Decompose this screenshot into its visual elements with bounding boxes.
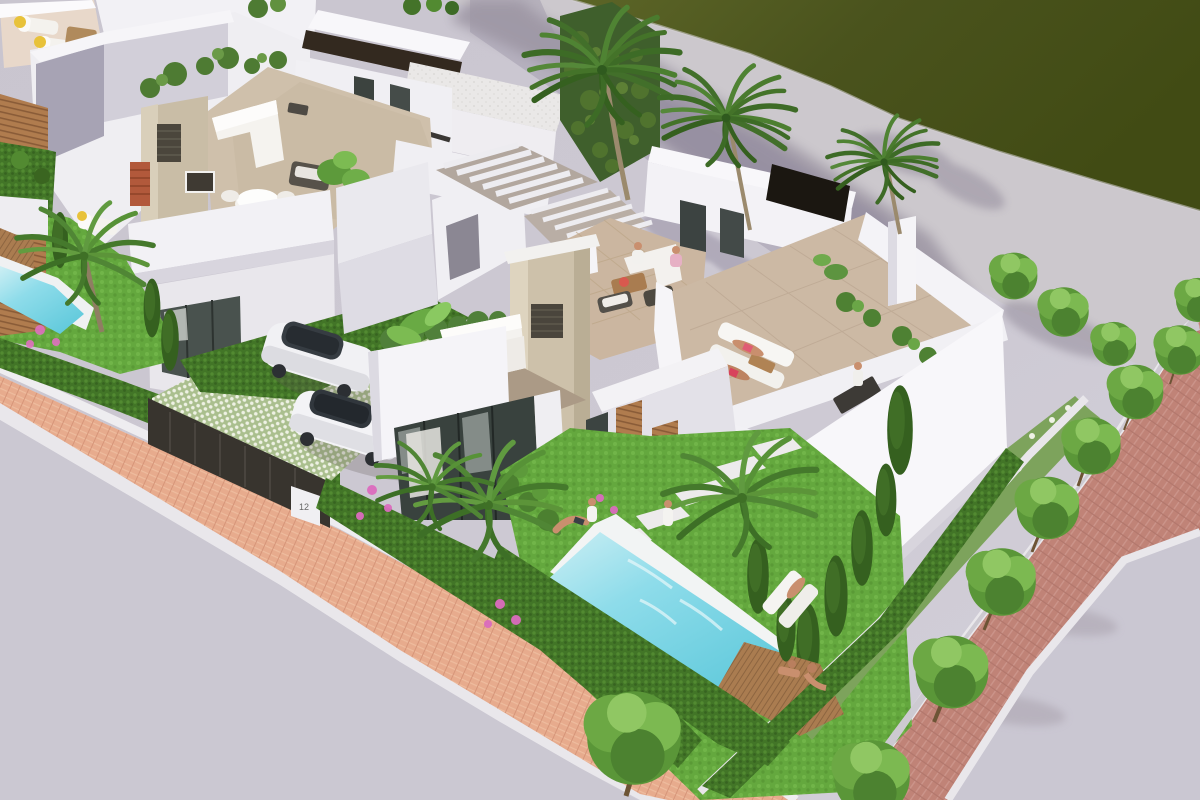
svg-text:12: 12 bbox=[299, 502, 309, 512]
